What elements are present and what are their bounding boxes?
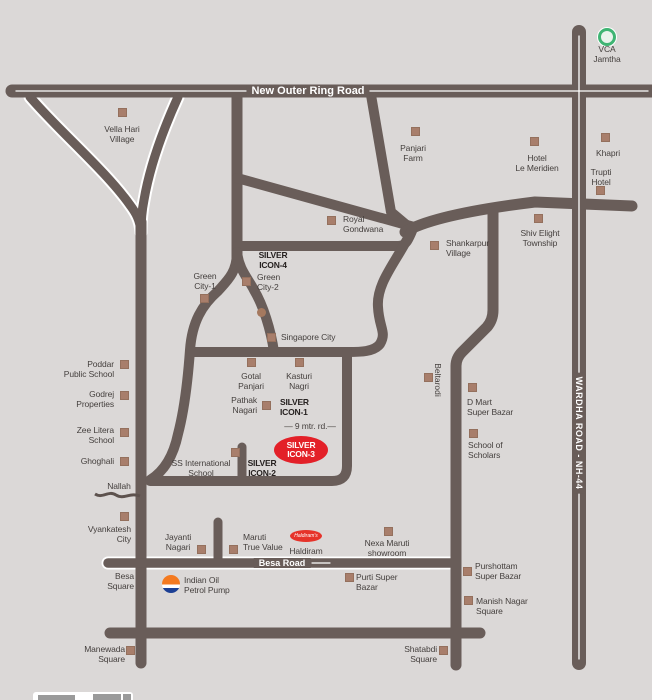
marker-nexa-maruti-showroom [384,527,393,536]
place-label-ss-international-school: SS InternationalSchool [172,458,231,478]
marker-poddar-public-school [120,360,129,369]
marker-pathak-nagari [262,401,271,410]
marker-purshottam-super-bazar [463,567,472,576]
place-label-trupti-hotel: TruptiHotel [591,167,612,187]
marker-purti-super-bazar [345,573,354,582]
road-label-wardha-road-nh-44: WARDHA ROAD - NH-44 [574,373,584,494]
place-label-haldiram: Haldiram [289,546,322,556]
green-city-dot [257,308,266,317]
marker-vella-hari-village [118,108,127,117]
place-label-vyankatesh-city: VyankateshCity [88,524,131,544]
place-label-silver-icon-1: SILVERICON-1 [280,397,309,417]
marker-d-mart-super-bazar [468,383,477,392]
place-label-nexa-maruti-showroom: Nexa Marutishowroom [365,538,410,558]
place-label-manish-nagar-square: Manish NagarSquare [476,596,528,616]
legend-bar-icon [123,694,131,700]
marker-singapore-city [267,333,276,342]
silver-icon4-road [237,231,412,246]
shiv-elight-road [405,202,632,232]
place-label-vella-hari-village: Vella HariVillage [104,124,139,144]
marker-ghoghali [120,457,129,466]
place-label-zee-litera-school: Zee LiteraSchool [77,425,114,445]
place-label-ghoghali: Ghoghali [81,456,114,466]
marker-beltarodi [424,373,433,382]
marker-shiv-elight-township [534,214,543,223]
marker-maruti-true-value [229,545,238,554]
legend-stub-partial [33,692,133,700]
place-label-purti-super-bazar: Purti SuperBazar [356,572,397,592]
place-label-kasturi-nagri: KasturiNagri [286,371,312,391]
place-label-vca-jamtha: VCAJamtha [593,44,620,64]
marker-jayanti-nagari [197,545,206,554]
road-label-new-outer-ring-road: New Outer Ring Road [246,85,369,97]
place-label-manewada-square: ManewadaSquare [84,644,125,664]
site-location-map: VCAJamthaVella HariVillagePanjariFarmHot… [0,0,652,700]
marker-shatabdi-square [439,646,448,655]
marker-khapri [601,133,610,142]
place-label-singapore-city: Singapore City [281,332,335,342]
place-label-school-of-scholars: School ofScholars [468,440,503,460]
marker-royal-gondwana [327,216,336,225]
road-network [0,0,652,700]
place-label-hotel-le-meridien: HotelLe Meridien [515,153,558,173]
place-label-poddar-public-school: PoddarPublic School [64,359,114,379]
haldiram-logo: Haldiram's [290,530,322,542]
marker-vyankatesh-city [120,512,129,521]
place-label-green-city-1: GreenCity-1 [193,271,216,291]
badge-silver-icon-3: SILVERICON-3 [274,436,328,464]
marker-hotel-le-meridien [530,137,539,146]
place-label-panjari-farm: PanjariFarm [400,143,426,163]
place-label-jayanti-nagari: JayantiNagari [165,532,191,552]
place-label-godrej-properties: GodrejProperties [76,389,114,409]
place-label-silver-icon-2: SILVERICON-2 [248,458,277,478]
marker-green-city-1 [200,294,209,303]
fork-road-left [30,97,141,232]
indian-oil-logo [162,575,180,593]
place-label-pathak-nagari: PathakNagari [231,395,257,415]
marker-trupti-hotel [596,186,605,195]
place-label-green-city-2: GreenCity-2 [257,272,280,292]
place-label-d-mart-super-bazar: D MartSuper Bazar [467,397,513,417]
place-label-purshottam-super-bazar: PurshottamSuper Bazar [475,561,521,581]
place-label-silver-icon-4: SILVERICON-4 [259,250,288,270]
place-label-nine-mtr-rd: — 9 mtr. rd.— [284,421,336,431]
place-label-maruti-true-value: MarutiTrue Value [243,532,283,552]
place-label-beltarodi: Beltarodi [433,363,443,397]
road-label-besa-road: Besa Road [254,558,311,568]
place-label-gotal-panjari: GotalPanjari [238,371,264,391]
marker-panjari-farm [411,127,420,136]
legend-bar-icon [38,695,75,700]
marker-zee-litera-school [120,428,129,437]
place-label-shiv-elight-township: Shiv ElightTownship [520,228,559,248]
marker-school-of-scholars [469,429,478,438]
legend-bar-icon [93,694,121,700]
marker-green-city-2 [242,277,251,286]
nallah-stream [95,493,140,496]
marker-manewada-square [126,646,135,655]
place-label-shatabdi-square: ShatabdiSquare [404,644,437,664]
marker-shankarpur-village [430,241,439,250]
marker-godrej-properties [120,391,129,400]
place-label-indian-oil-petrol-pump: Indian OilPetrol Pump [184,575,230,595]
place-label-besa-square: BesaSquare [107,571,134,591]
place-label-shankarpur-village: ShankarpurVillage [446,238,489,258]
marker-ss-international-school [231,448,240,457]
marker-kasturi-nagri [295,358,304,367]
place-label-royal-gondwana: RoyalGondwana [343,214,383,234]
place-label-khapri: Khapri [596,148,620,158]
marker-manish-nagar-square [464,596,473,605]
place-label-nallah: Nallah [107,481,131,491]
marker-gotal-panjari [247,358,256,367]
